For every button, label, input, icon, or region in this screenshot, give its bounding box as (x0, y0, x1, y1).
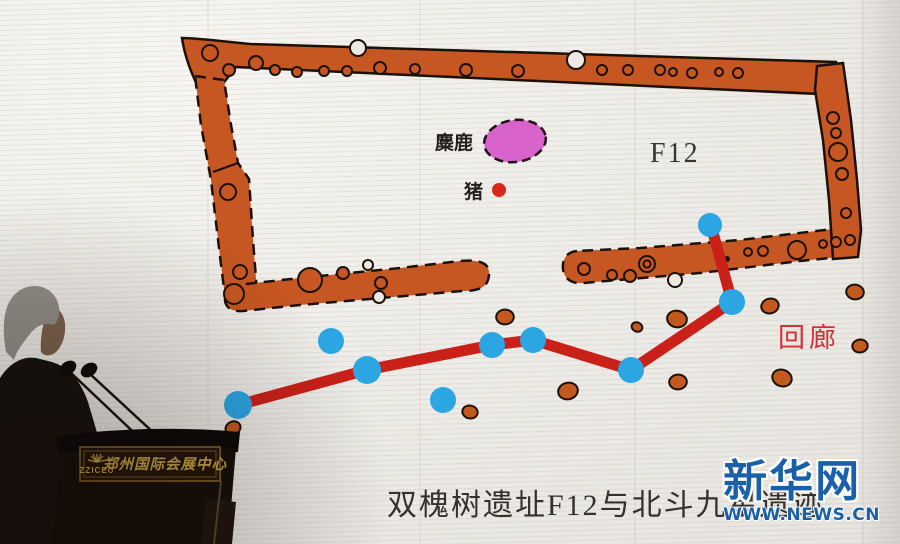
posthole (298, 268, 322, 292)
xinhuanet-watermark: 新华网 WWW.NEWS.CN (723, 460, 880, 524)
wall-top (182, 38, 842, 95)
posthole (668, 273, 682, 287)
elk-burial-pit (481, 116, 548, 197)
pit (630, 321, 644, 334)
posthole (374, 62, 386, 74)
elk-label: 麋鹿 (435, 131, 473, 154)
posthole (342, 66, 352, 76)
pit (556, 381, 579, 402)
posthole (270, 65, 280, 75)
posthole (819, 240, 827, 248)
pit (760, 296, 781, 315)
posthole (512, 65, 524, 77)
posthole (375, 277, 387, 289)
star-pit (353, 356, 381, 384)
house-walls (182, 38, 861, 311)
star-pit (698, 213, 722, 237)
xinhuanet-url: WWW.NEWS.CN (723, 507, 880, 524)
posthole (292, 67, 302, 77)
outer-pits (223, 283, 868, 437)
posthole (831, 237, 841, 247)
posthole (845, 235, 855, 245)
pit (496, 309, 514, 324)
posthole (744, 248, 752, 256)
posthole (836, 168, 848, 180)
posthole (733, 68, 743, 78)
posthole (410, 64, 420, 74)
posthole (715, 68, 723, 76)
posthole (827, 112, 839, 124)
pit (852, 339, 868, 353)
star-pit (618, 357, 644, 383)
microphone-head (78, 360, 100, 381)
pit (669, 374, 687, 390)
corridor-label: 回廊 (778, 323, 840, 354)
posthole-inner-ring (643, 260, 650, 267)
pit (770, 367, 794, 390)
posthole (831, 128, 841, 138)
posthole (319, 66, 329, 76)
star-pit (318, 328, 344, 354)
posthole (578, 263, 590, 275)
posthole (687, 68, 697, 78)
star-pit (479, 332, 505, 358)
posthole (788, 241, 806, 259)
pit (461, 404, 479, 420)
posthole (829, 143, 847, 161)
pit (845, 283, 864, 300)
elk-pit-oval (481, 116, 548, 166)
posthole (597, 65, 607, 75)
posthole (624, 270, 636, 282)
posthole (363, 260, 373, 270)
wall-bottom-left (225, 261, 489, 312)
posthole (337, 267, 349, 279)
speaker-and-podium: ZZICEC 郑州国际会展中心 (0, 0, 260, 544)
star-pit (719, 289, 745, 315)
posthole (841, 208, 851, 218)
posthole (460, 64, 472, 76)
posthole (607, 270, 617, 280)
posthole (373, 291, 385, 303)
xinhuanet-logo-text: 新华网 (723, 460, 880, 504)
posthole (623, 65, 633, 75)
posthole (655, 65, 665, 75)
star-pit (520, 327, 546, 353)
pit (666, 309, 688, 329)
star-pit (430, 387, 456, 413)
podium-venue-name: 郑州国际会展中心 (102, 456, 227, 473)
pig-label: 猪 (463, 181, 483, 203)
house-id-label: F12 (650, 138, 700, 169)
posthole (567, 51, 585, 69)
pig-pit-dot (492, 183, 506, 197)
photo-of-presentation: 麋鹿 猪 F12 回廊 双槐树遗址F12与北斗九星遗迹 ZZICEC 郑州国际会… (0, 0, 900, 544)
posthole (669, 68, 677, 76)
posthole (758, 246, 768, 256)
posthole (350, 40, 366, 56)
